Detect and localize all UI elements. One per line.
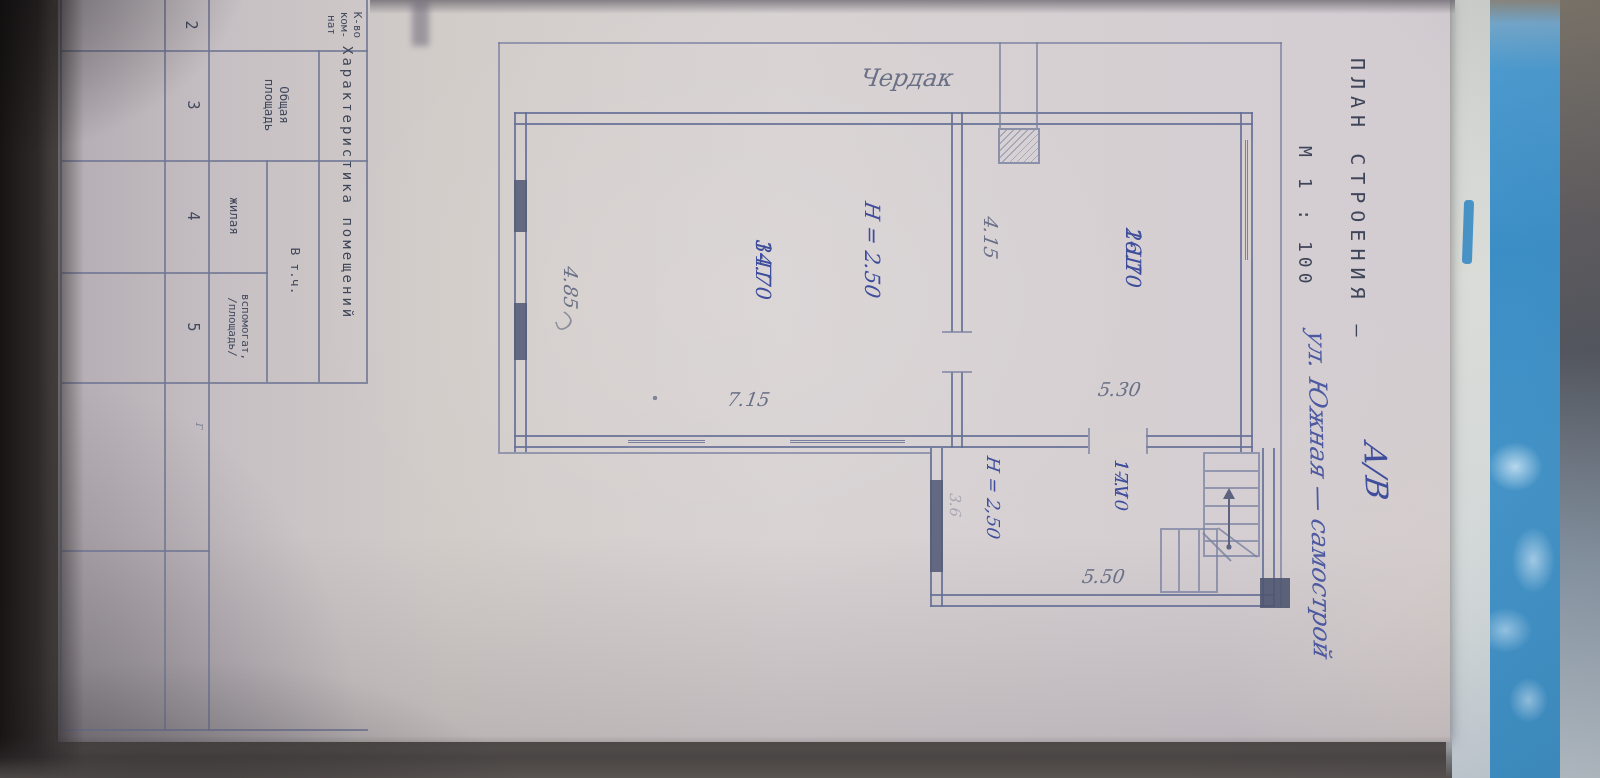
handwritten-mark: г [193, 422, 208, 429]
table-line [266, 160, 268, 382]
room-area: 17.10 [1111, 458, 1130, 510]
photo-of-floor-plan-document: ПЛАН СТРОЕНИЯ — А/В М 1 : 100 ул. Южная … [0, 0, 1600, 778]
paper-edge-shadow-left [0, 0, 84, 778]
column-header-auxiliary: вспомогат, /площадь/ [226, 274, 252, 380]
attic-label: Чердак [857, 64, 952, 92]
table-line [318, 50, 320, 382]
room-area: 26.70 [1122, 226, 1144, 286]
column-number-2: 2 [182, 0, 200, 50]
table-line [62, 382, 368, 384]
table-line [62, 550, 210, 552]
table-title: Характеристика помещений [340, 46, 356, 382]
folder-white-edge [1446, 0, 1494, 778]
room-height-1p: Н = 2.50 [860, 199, 884, 298]
blue-folder-band [1490, 0, 1560, 778]
table-line [62, 729, 368, 731]
dimension-4-85: 4.85 [560, 264, 582, 309]
table-line [208, 0, 210, 730]
dimension-5-30: 5.30 [1096, 378, 1141, 400]
dimension-7-15: 7.15 [725, 388, 770, 410]
document-paper: ПЛАН СТРОЕНИЯ — А/В М 1 : 100 ул. Южная … [58, 0, 1450, 742]
column-header-total-area: Общая площадь [262, 52, 292, 158]
pencil-smudge [412, 0, 429, 46]
dimension-faint: 3.6 [946, 492, 964, 516]
room-height-1iv: Н = 2,50 [983, 454, 1004, 539]
table-line [62, 50, 368, 52]
column-number-5: 5 [184, 272, 202, 382]
column-number-4: 4 [184, 160, 202, 272]
room-area: 34.70 [752, 238, 774, 298]
table-line [366, 0, 368, 382]
table-surface-right [1558, 0, 1600, 778]
paper-edge-shadow-bottom [0, 736, 1452, 778]
dimension-4-15: 4.15 [980, 214, 1002, 259]
column-header-including: В т.ч. [288, 160, 303, 382]
dimension-5-50: 5.50 [1080, 565, 1125, 587]
table-line [164, 0, 166, 730]
column-number-3: 3 [184, 50, 202, 160]
table-line [62, 160, 368, 162]
column-header-living: жилая [227, 162, 242, 270]
paper-edge-shadow-top [370, 0, 1455, 14]
column-header-rooms: К-во ком- нат [325, 0, 364, 50]
